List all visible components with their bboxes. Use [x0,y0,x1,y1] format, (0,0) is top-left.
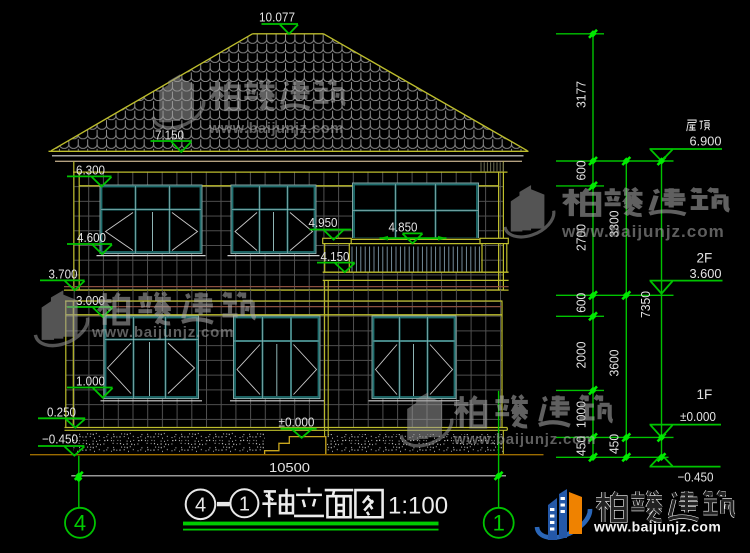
svg-text:6.300: 6.300 [76,163,105,178]
svg-text:600: 600 [574,293,589,313]
svg-text:−0.450: −0.450 [678,470,714,485]
svg-text:7350: 7350 [638,291,653,318]
svg-text:4.850: 4.850 [389,219,418,234]
svg-text:2F: 2F [697,251,713,266]
svg-text:4: 4 [74,511,86,536]
svg-text:−0.450: −0.450 [42,432,78,447]
svg-text:3600: 3600 [607,350,622,377]
svg-text:10500: 10500 [269,460,310,475]
svg-text:1.000: 1.000 [76,373,105,388]
svg-text:1: 1 [239,494,250,516]
svg-text:1: 1 [493,511,505,536]
svg-text:1:100: 1:100 [388,493,448,520]
svg-text:3.600: 3.600 [690,266,722,281]
svg-text:4.150: 4.150 [321,249,350,264]
svg-text:www.baijunjz.com: www.baijunjz.com [453,431,596,448]
svg-text:3.700: 3.700 [49,267,78,282]
svg-text:www.baijunjz.com: www.baijunjz.com [91,324,234,341]
svg-text:0.250: 0.250 [47,404,76,419]
svg-text:7.150: 7.150 [155,127,184,142]
svg-text:www.baijunjz.com: www.baijunjz.com [593,519,721,535]
svg-text:3177: 3177 [574,81,589,108]
svg-text:1F: 1F [697,387,713,402]
svg-text:4.950: 4.950 [309,215,338,230]
svg-text:±0.000: ±0.000 [680,409,716,424]
svg-text:10.077: 10.077 [259,10,295,25]
svg-text:www.baijunjz.com: www.baijunjz.com [208,121,344,137]
svg-text:6.900: 6.900 [690,134,722,149]
svg-text:4: 4 [195,495,206,517]
svg-text:600: 600 [574,161,589,181]
svg-text:±0.000: ±0.000 [279,414,315,429]
svg-text:450: 450 [607,434,622,454]
svg-text:4.600: 4.600 [77,230,106,245]
svg-text:www.baijunjz.com: www.baijunjz.com [561,222,725,241]
svg-text:2000: 2000 [574,342,589,369]
